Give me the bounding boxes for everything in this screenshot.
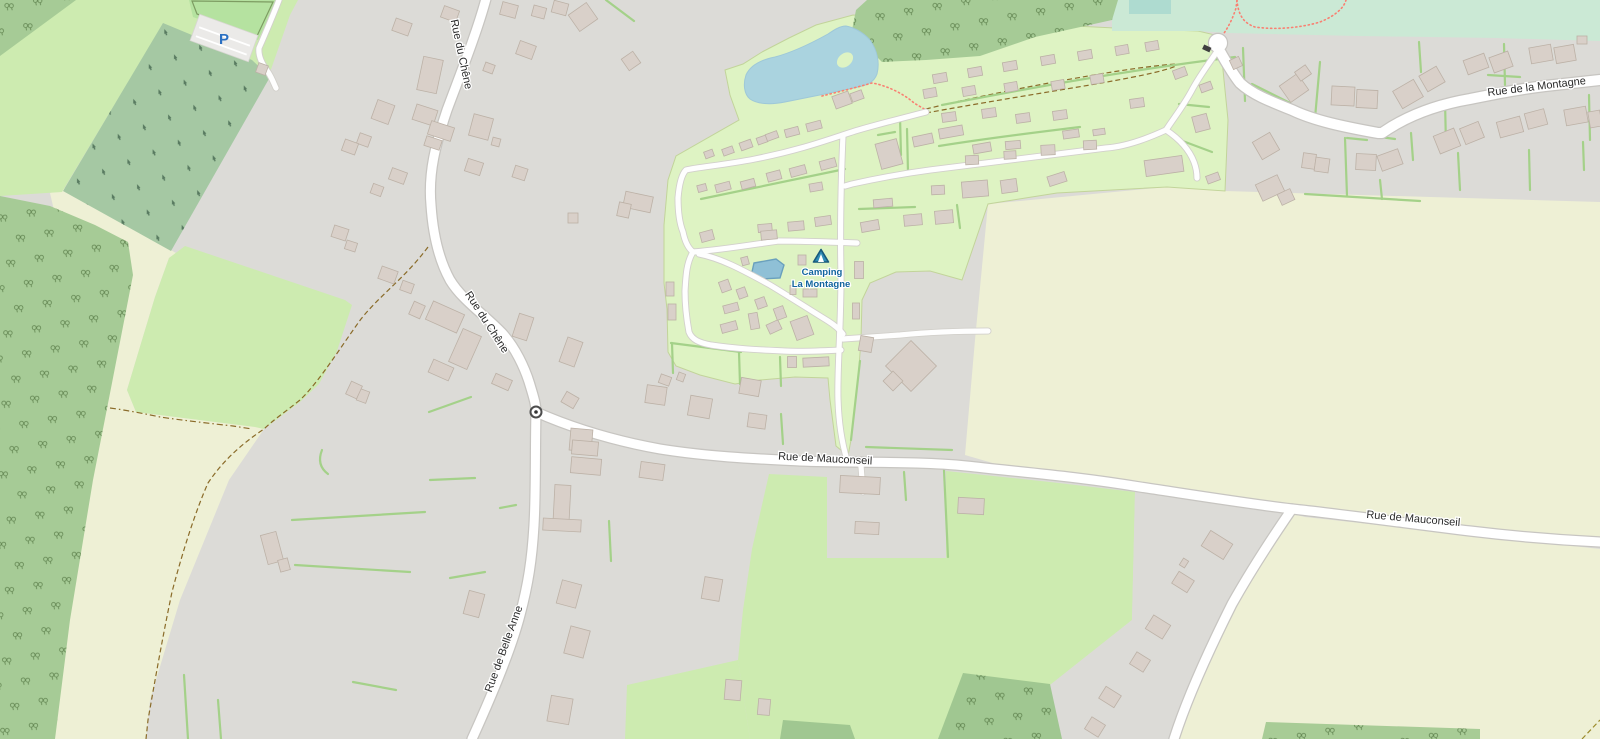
svg-text:Camping: Camping bbox=[802, 267, 843, 278]
svg-text:La Montagne: La Montagne bbox=[792, 279, 851, 290]
svg-text:P: P bbox=[219, 31, 229, 48]
